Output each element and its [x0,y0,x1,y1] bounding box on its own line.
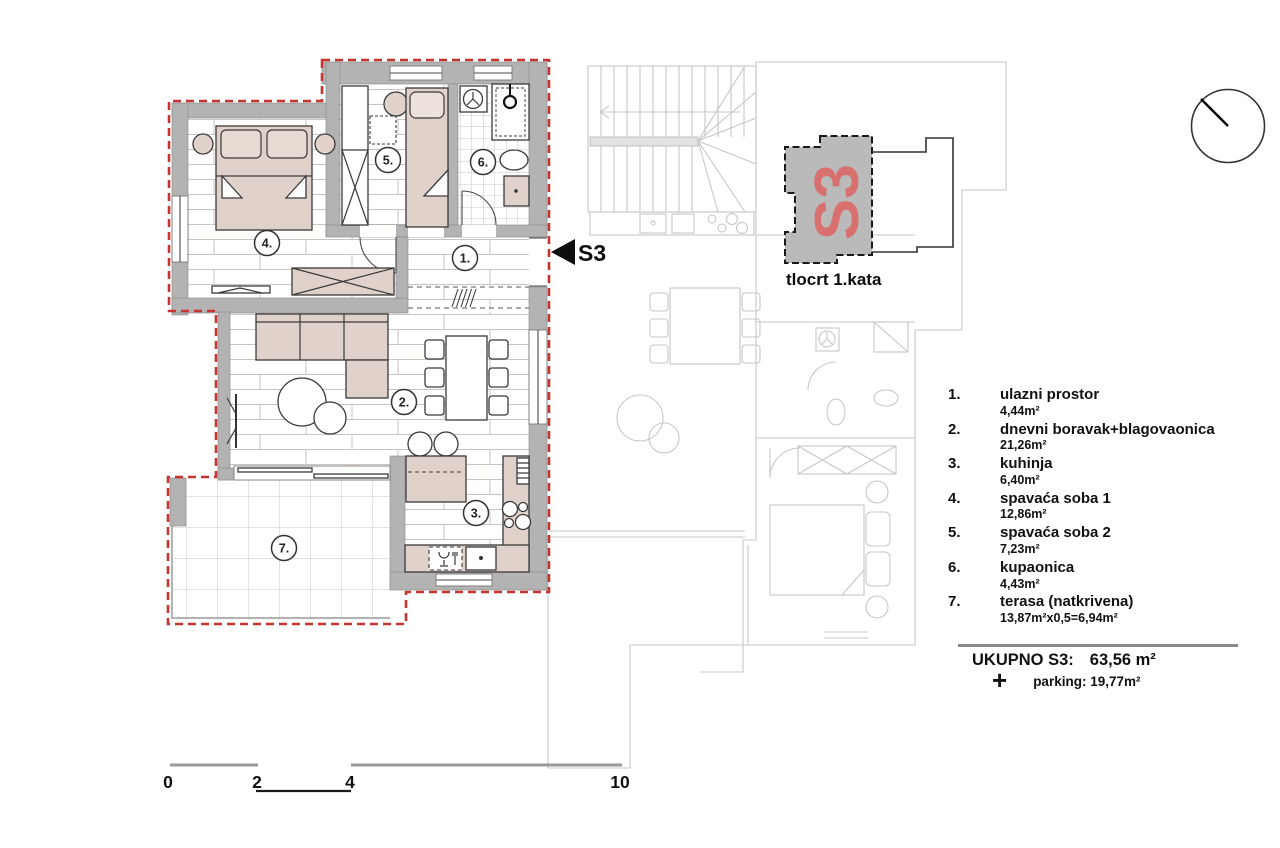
floorplan-page: 1. 2. 3. 4. 5. 6. 7. S3 S3 tlocrt 1.kata… [0,0,1280,848]
room-3-badge: 3. [471,507,481,521]
side-table-icon [384,92,408,116]
legend-area: 4,44m² [1000,405,1248,419]
sliding-door-icon [234,466,390,480]
entrance-marker: S3 [551,239,606,266]
legend-num: 2. [948,422,1000,439]
toilet-icon [500,150,528,170]
room-1-badge: 1. [460,252,470,266]
coffee-table-icon [314,402,346,434]
room-4-badge: 4. [262,237,272,251]
total-divider [958,644,1238,647]
legend-name: spavaća soba 2 [1000,525,1248,542]
room-legend: 1.ulazni prostor4,44m² 2.dnevni boravak+… [948,387,1248,629]
room-6-badge: 6. [478,156,488,170]
legend-num: 7. [948,594,1000,611]
kitchen-island-icon [406,456,466,502]
inset-unit-label: S3 [803,164,872,240]
pillow-icon [267,130,307,158]
legend-name: kupaonica [1000,560,1248,577]
desk-icon [370,116,396,144]
scale-tick-0: 0 [163,772,173,792]
legend-area: 6,40m² [1000,474,1248,488]
pillow-icon [221,130,261,158]
room-5-badge: 5. [383,154,393,168]
parking-label: parking: 19,77m² [1033,674,1140,689]
compass-icon [1192,90,1265,163]
legend-area: 7,23m² [1000,543,1248,557]
legend-name: terasa (natkrivena) [1000,594,1248,611]
legend-item: 2.dnevni boravak+blagovaonica21,26m² [948,422,1248,454]
legend-area: 21,26m² [1000,439,1248,453]
total-label: UKUPNO S3: [972,651,1074,670]
plus-icon: + [992,669,1007,691]
bar-stool-icon [408,432,432,456]
north-needle [1201,99,1228,126]
legend-item: 1.ulazni prostor4,44m² [948,387,1248,419]
legend-name: ulazni prostor [1000,387,1248,404]
entrance-marker-label: S3 [578,240,606,266]
legend-name: kuhinja [1000,456,1248,473]
legend-num: 3. [948,456,1000,473]
sofa-chaise-icon [346,360,388,398]
nightstand-icon [193,134,213,154]
parking-row: + parking: 19,77m² [992,669,1140,691]
neighbor-units [548,62,1006,768]
entrance-arrow-icon [551,239,575,265]
legend-item: 7.terasa (natkrivena)13,87m²x0,5=6,94m² [948,594,1248,626]
room-7-badge: 7. [279,542,289,556]
legend-area: 4,43m² [1000,578,1248,592]
scale-tick-10: 10 [610,772,630,792]
legend-item: 5.spavaća soba 27,23m² [948,525,1248,557]
legend-num: 6. [948,560,1000,577]
inset-caption: tlocrt 1.kata [786,270,882,289]
legend-item: 3.kuhinja6,40m² [948,456,1248,488]
legend-area: 12,86m² [1000,508,1248,522]
legend-name: dnevni boravak+blagovaonica [1000,422,1248,439]
scale-tick-4: 4 [345,772,355,792]
legend-name: spavaća soba 1 [1000,491,1248,508]
inset-key-map: S3 tlocrt 1.kata [785,136,953,289]
shower-head-icon [504,96,516,108]
nightstand-icon [315,134,335,154]
scale-bar: 0 2 4 10 [163,765,630,792]
wardrobe-icon [342,86,368,225]
legend-area: 13,87m²x0,5=6,94m² [1000,612,1248,626]
bar-stool-icon [434,432,458,456]
scale-tick-2: 2 [252,772,262,792]
legend-item: 4.spavaća soba 112,86m² [948,491,1248,523]
fridge-icon [517,458,529,484]
dining-table-icon [446,336,487,420]
entrance-opening [529,238,547,286]
legend-num: 1. [948,387,1000,404]
legend-num: 4. [948,491,1000,508]
pillow-icon [410,92,444,118]
legend-num: 5. [948,525,1000,542]
room-2-badge: 2. [399,396,409,410]
stair-stringer [590,137,698,146]
sofa-icon [256,314,388,360]
total-value: 63,56 m² [1090,651,1156,670]
legend-item: 6.kupaonica4,43m² [948,560,1248,592]
